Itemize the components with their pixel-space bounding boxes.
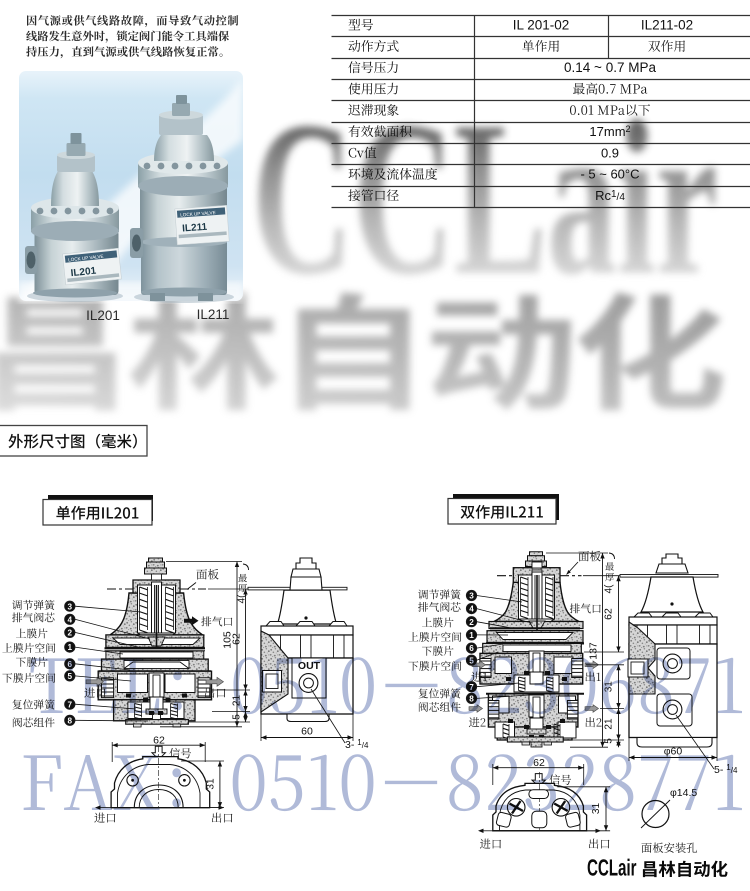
svg-text:0.9: 0.9	[601, 145, 619, 160]
svg-text:4(: 4(	[237, 594, 248, 604]
svg-text:1: 1	[469, 631, 474, 640]
svg-text:IL211: IL211	[197, 307, 230, 322]
svg-text:62: 62	[603, 608, 615, 620]
svg-text:8: 8	[68, 716, 73, 725]
svg-text:5: 5	[232, 714, 243, 720]
svg-text:7: 7	[68, 700, 73, 709]
svg-text:- 5 ~ 60°C: - 5 ~ 60°C	[580, 167, 639, 182]
svg-text:2: 2	[68, 629, 73, 638]
svg-text:1: 1	[68, 643, 73, 652]
svg-text:62: 62	[533, 757, 545, 769]
svg-text:60: 60	[301, 726, 313, 738]
svg-text:5: 5	[68, 672, 73, 681]
svg-text:62: 62	[153, 735, 165, 747]
svg-text:4: 4	[469, 605, 474, 614]
svg-text:3: 3	[469, 592, 474, 601]
svg-text:IL201: IL201	[86, 308, 120, 323]
svg-text:6: 6	[469, 644, 474, 653]
svg-text:5: 5	[604, 738, 615, 744]
svg-text:0.14 ~ 0.7 MPa: 0.14 ~ 0.7 MPa	[564, 60, 656, 75]
svg-text:17mm2: 17mm2	[589, 124, 630, 139]
svg-text:IL 201-02: IL 201-02	[513, 18, 570, 33]
svg-text:31: 31	[206, 778, 217, 790]
svg-text:62: 62	[231, 633, 243, 645]
svg-text:4: 4	[68, 615, 73, 624]
svg-text:3: 3	[68, 602, 73, 611]
svg-text:137: 137	[588, 642, 600, 660]
svg-text:21: 21	[604, 718, 615, 730]
svg-text:4(: 4(	[604, 584, 615, 594]
svg-text:2: 2	[469, 618, 474, 627]
svg-text:8: 8	[469, 695, 474, 704]
svg-text:IL211: IL211	[182, 222, 208, 235]
svg-text:IL211-02: IL211-02	[641, 18, 693, 33]
